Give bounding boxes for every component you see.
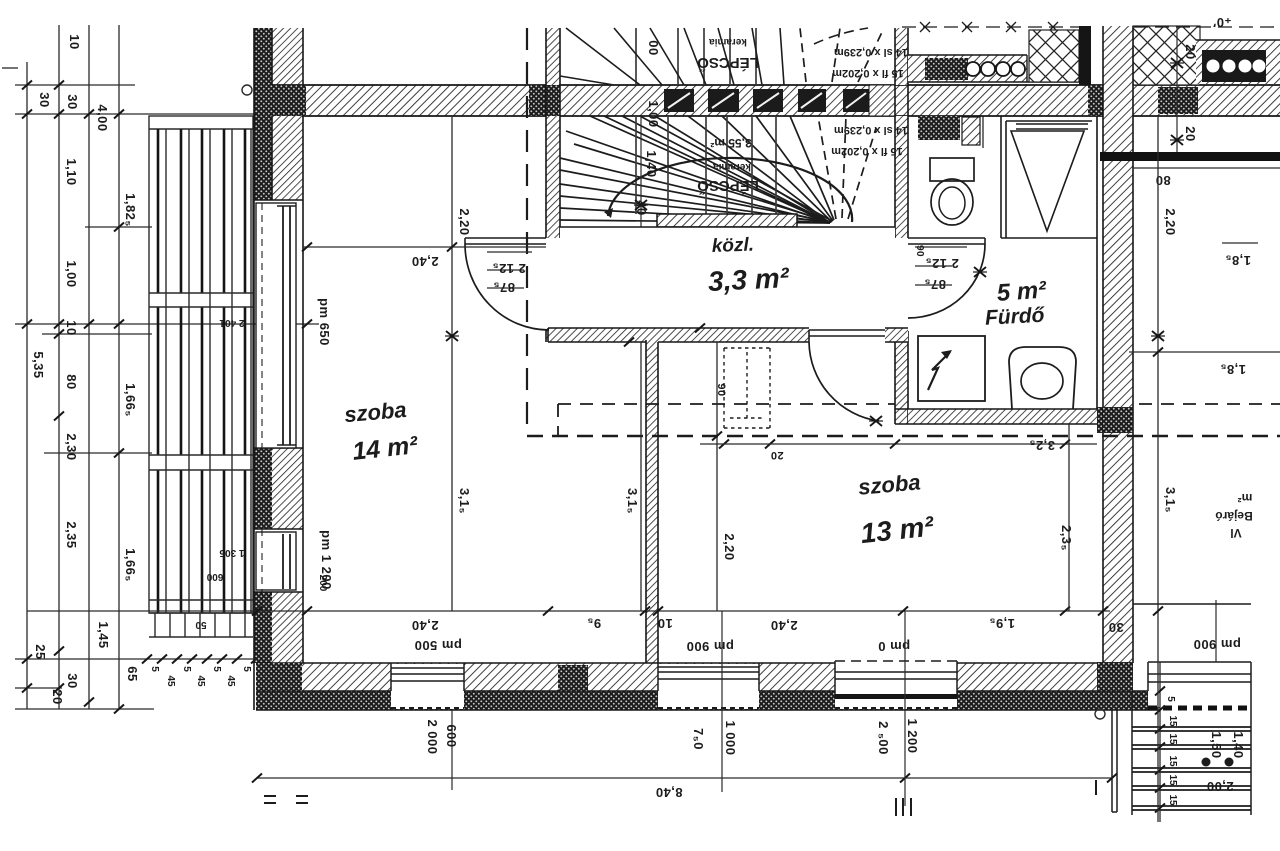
- svg-text:10: 10: [67, 34, 82, 49]
- svg-text:2,00: 2,00: [1206, 779, 1233, 794]
- svg-text:3,1₅: 3,1₅: [1163, 487, 1178, 513]
- svg-text:20: 20: [1183, 44, 1198, 59]
- svg-text:1,00: 1,00: [646, 100, 661, 127]
- svg-text:5: 5: [181, 666, 192, 672]
- svg-text:20: 20: [770, 449, 783, 461]
- svg-text:pm 900: pm 900: [1193, 637, 1241, 652]
- svg-text:2,35: 2,35: [64, 521, 79, 548]
- svg-text:15 fl x 0,202m: 15 fl x 0,202m: [832, 67, 904, 79]
- svg-text:2,40: 2,40: [411, 254, 438, 269]
- svg-text:80: 80: [64, 374, 79, 389]
- svg-text:1,45: 1,45: [96, 621, 111, 648]
- svg-text:5: 5: [1165, 696, 1176, 702]
- svg-text:keramia: keramia: [713, 161, 751, 172]
- svg-text:2,20: 2,20: [722, 533, 737, 560]
- svg-text:m²: m²: [1238, 491, 1253, 505]
- svg-text:00: 00: [646, 40, 661, 55]
- svg-text:2,30: 2,30: [64, 433, 79, 460]
- svg-text:Fürdő: Fürdő: [984, 304, 1046, 330]
- svg-text:1,00: 1,00: [64, 260, 79, 287]
- svg-text:1,40: 1,40: [644, 150, 659, 177]
- svg-text:20: 20: [50, 689, 65, 704]
- svg-text:₊0′: ₊0′: [1213, 15, 1232, 30]
- svg-text:45: 45: [165, 675, 176, 687]
- svg-text:5: 5: [241, 666, 252, 672]
- svg-text:LÉPCSŐ: LÉPCSŐ: [697, 54, 759, 72]
- svg-text:5: 5: [149, 666, 160, 672]
- svg-text:30: 30: [37, 92, 52, 107]
- svg-text:2 000: 2 000: [425, 719, 440, 754]
- svg-text:65: 65: [125, 666, 140, 681]
- svg-text:LÉPCSŐ: LÉPCSŐ: [697, 177, 759, 195]
- svg-text:pm 900: pm 900: [686, 639, 734, 654]
- svg-text:2 40​1: 2 40​1: [219, 317, 244, 328]
- svg-text:pm 500: pm 500: [414, 638, 462, 653]
- svg-text:200: 200: [317, 575, 328, 592]
- svg-text:3,1₅: 3,1₅: [625, 488, 640, 514]
- svg-text:9₅: 9₅: [587, 616, 601, 631]
- svg-text:7₅0: 7₅0: [691, 728, 706, 750]
- svg-text:Bejáró: Bejáró: [1215, 509, 1252, 523]
- svg-text:1,66₅: 1,66₅: [123, 383, 138, 417]
- svg-text:4,00: 4,00: [95, 104, 110, 131]
- svg-text:5,35: 5,35: [31, 351, 46, 378]
- svg-text:30: 30: [1108, 620, 1123, 635]
- svg-text:15: 15: [1167, 794, 1178, 806]
- svg-text:50: 50: [195, 619, 207, 630]
- svg-text:600: 600: [444, 724, 459, 747]
- svg-text:5: 5: [211, 666, 222, 672]
- svg-text:2 12₅: 2 12₅: [492, 261, 526, 276]
- svg-text:1,8₅: 1,8₅: [1225, 253, 1251, 268]
- svg-text:30: 30: [65, 94, 80, 109]
- svg-text:keramia: keramia: [709, 36, 747, 47]
- svg-text:1,66₅: 1,66₅: [123, 548, 138, 582]
- svg-text:1,10: 1,10: [64, 158, 79, 185]
- svg-text:20: 20: [1183, 126, 1198, 141]
- svg-text:1 000: 1 000: [723, 720, 738, 755]
- svg-text:1,9₅: 1,9₅: [989, 616, 1015, 631]
- svg-text:2,20: 2,20: [1163, 208, 1178, 235]
- svg-text:25: 25: [33, 644, 48, 659]
- svg-text:10: 10: [64, 320, 79, 335]
- svg-text:45: 45: [195, 675, 206, 687]
- svg-text:14 sl x 0,239m: 14 sl x 0,239m: [834, 46, 908, 58]
- svg-text:14 sl x 0,239m: 14 sl x 0,239m: [834, 124, 908, 136]
- svg-text:2,40: 2,40: [411, 618, 438, 633]
- svg-text:1,82₅: 1,82₅: [123, 193, 138, 227]
- svg-text:1,8₅: 1,8₅: [1220, 362, 1246, 377]
- svg-text:3,55 m²: 3,55 m²: [710, 136, 751, 150]
- svg-text:15: 15: [1167, 774, 1178, 786]
- svg-text:15: 15: [1167, 755, 1178, 767]
- svg-text:30: 30: [65, 673, 80, 688]
- svg-text:2 ₅00: 2 ₅00: [876, 721, 891, 755]
- svg-text:2,40: 2,40: [770, 618, 797, 633]
- svg-text:közl.: közl.: [711, 235, 754, 257]
- svg-text:3,1₅: 3,1₅: [457, 488, 472, 514]
- svg-text:3,2₅: 3,2₅: [1029, 438, 1055, 453]
- svg-text:2 12₅: 2 12₅: [925, 256, 959, 271]
- svg-text:8,40: 8,40: [655, 785, 682, 800]
- svg-text:2,20: 2,20: [457, 208, 472, 235]
- svg-text:40: 40: [634, 200, 649, 215]
- svg-text:45: 45: [225, 675, 236, 687]
- svg-text:Vl: Vl: [1230, 526, 1241, 540]
- svg-text:10: 10: [657, 616, 672, 631]
- svg-text:1 30​5: 1 30​5: [219, 547, 244, 558]
- svg-text:600: 600: [206, 571, 223, 582]
- svg-text:2,3₅: 2,3₅: [1059, 525, 1074, 551]
- svg-text:pm 650: pm 650: [317, 298, 332, 346]
- svg-text:3,3 m²: 3,3 m²: [707, 262, 790, 297]
- svg-text:15: 15: [1167, 733, 1178, 745]
- svg-text:15 fl x 0,202m: 15 fl x 0,202m: [831, 145, 903, 157]
- svg-text:1,40: 1,40: [1231, 731, 1246, 758]
- svg-text:1 200: 1 200: [905, 718, 920, 753]
- svg-text:1,50: 1,50: [1209, 731, 1224, 758]
- svg-text:15: 15: [1167, 715, 1178, 727]
- svg-text:5 m²: 5 m²: [996, 276, 1048, 306]
- svg-text:87₅: 87₅: [493, 280, 515, 295]
